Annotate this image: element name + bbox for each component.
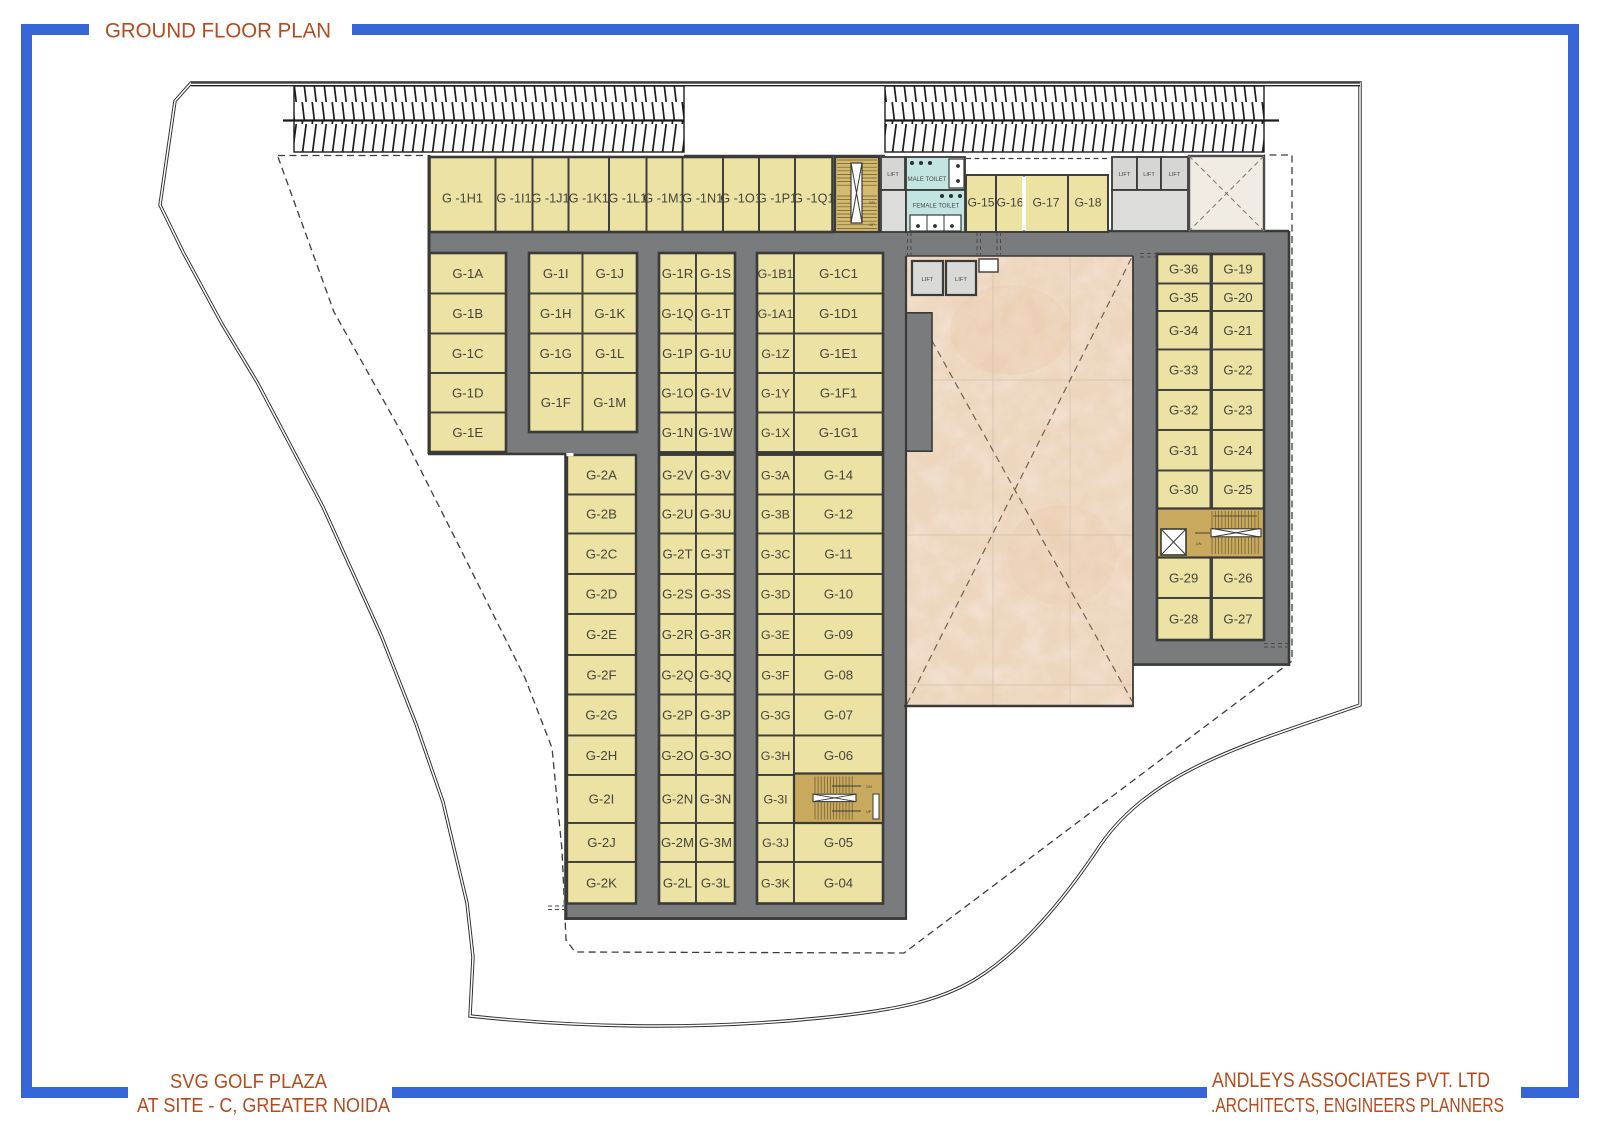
svg-text:G-3C: G-3C	[761, 547, 791, 561]
svg-text:G-21: G-21	[1223, 323, 1252, 338]
svg-text:G-06: G-06	[824, 748, 853, 763]
svg-text:G-1R: G-1R	[662, 266, 694, 281]
svg-text:G-3G: G-3G	[760, 709, 790, 723]
svg-text:MALE TOILET: MALE TOILET	[908, 177, 947, 183]
svg-text:DN: DN	[1196, 542, 1202, 546]
svg-text:G-26: G-26	[1223, 570, 1252, 585]
svg-text:G-3V: G-3V	[700, 467, 731, 482]
svg-text:G-3K: G-3K	[761, 876, 791, 890]
svg-text:G-28: G-28	[1169, 612, 1198, 627]
svg-text:G-1L: G-1L	[595, 346, 624, 361]
svg-text:G-1G1: G-1G1	[819, 425, 859, 440]
svg-text:G-31: G-31	[1169, 443, 1198, 458]
svg-text:G-3H: G-3H	[761, 749, 791, 763]
svg-text:G-1Y: G-1Y	[761, 386, 790, 400]
svg-text:G-1Z: G-1Z	[761, 347, 790, 361]
svg-text:G-09: G-09	[824, 627, 853, 642]
svg-text:G-1A1: G-1A1	[758, 307, 794, 321]
svg-text:G-1W: G-1W	[698, 425, 733, 440]
svg-text:G-1E1: G-1E1	[819, 346, 857, 361]
svg-text:LIFT: LIFT	[922, 277, 934, 283]
svg-text:G-1C1: G-1C1	[819, 266, 858, 281]
svg-text:G-2U: G-2U	[662, 507, 694, 522]
svg-text:G-1X: G-1X	[761, 426, 790, 440]
svg-text:G-19: G-19	[1223, 261, 1252, 276]
svg-text:G-2P: G-2P	[662, 708, 693, 723]
svg-text:G-25: G-25	[1223, 482, 1252, 497]
svg-text:ANDLEYS ASSOCIATES PVT. LTD: ANDLEYS ASSOCIATES PVT. LTD	[1212, 1069, 1490, 1092]
svg-text:G-17: G-17	[1032, 196, 1059, 210]
svg-text:G-1A: G-1A	[452, 266, 483, 281]
svg-text:G-1V: G-1V	[700, 385, 731, 400]
svg-text:G-18: G-18	[1074, 196, 1101, 210]
svg-text:G-3D: G-3D	[761, 588, 791, 602]
svg-text:G -1N1: G -1N1	[682, 192, 723, 206]
svg-text:G-11: G-11	[824, 546, 852, 561]
svg-text:G-1Q: G-1Q	[661, 306, 693, 321]
svg-text:G-3R: G-3R	[700, 627, 732, 642]
svg-text:G-10: G-10	[824, 587, 853, 602]
svg-text:G-2N: G-2N	[662, 792, 694, 807]
svg-text:G-14: G-14	[824, 467, 853, 482]
svg-text:G-27: G-27	[1223, 612, 1252, 627]
svg-text:G-05: G-05	[824, 835, 853, 850]
svg-text:FEMALE TOILET: FEMALE TOILET	[913, 204, 960, 210]
svg-text:G-2K: G-2K	[586, 875, 617, 890]
svg-text:LIFT: LIFT	[1143, 172, 1155, 178]
svg-text:G-1B1: G-1B1	[758, 267, 794, 281]
svg-text:G-34: G-34	[1169, 323, 1198, 338]
svg-text:G-1O: G-1O	[661, 385, 693, 400]
svg-text:G-3S: G-3S	[700, 587, 731, 602]
svg-text:G-2Q: G-2Q	[661, 667, 693, 682]
svg-text:G-20: G-20	[1223, 290, 1252, 305]
svg-text:G-3T: G-3T	[700, 546, 730, 561]
svg-text:UP: UP	[866, 810, 872, 814]
svg-text:AT SITE - C, GREATER NOIDA: AT SITE - C, GREATER NOIDA	[137, 1095, 391, 1117]
svg-text:G-1F: G-1F	[541, 395, 571, 410]
svg-text:G-3Q: G-3Q	[699, 667, 731, 682]
svg-text:G-2C: G-2C	[586, 546, 618, 561]
svg-text:G-3B: G-3B	[761, 508, 790, 522]
svg-text:G-2G: G-2G	[585, 708, 617, 723]
svg-text:G-3M: G-3M	[699, 835, 732, 850]
svg-text:G -1M1: G -1M1	[643, 192, 685, 206]
svg-text:G-22: G-22	[1223, 362, 1252, 377]
svg-text:.ARCHITECTS, ENGINEERS PLANNER: .ARCHITECTS, ENGINEERS PLANNERS	[1211, 1095, 1504, 1117]
svg-text:G-04: G-04	[824, 875, 853, 890]
svg-text:UP: UP	[869, 223, 875, 227]
svg-text:G-23: G-23	[1223, 403, 1252, 418]
svg-text:G-2A: G-2A	[586, 467, 617, 482]
svg-text:G-2R: G-2R	[662, 627, 694, 642]
svg-text:G-3J: G-3J	[762, 836, 789, 850]
svg-text:DN: DN	[869, 201, 875, 205]
svg-text:G-2L: G-2L	[663, 875, 692, 890]
svg-text:G-3L: G-3L	[701, 875, 730, 890]
svg-text:G -1P1: G -1P1	[757, 192, 797, 206]
svg-text:G-29: G-29	[1169, 570, 1198, 585]
svg-text:G-2F: G-2F	[586, 667, 616, 682]
svg-text:LIFT: LIFT	[887, 172, 899, 178]
svg-text:G-1K: G-1K	[594, 306, 625, 321]
svg-text:G -1I1: G -1I1	[496, 192, 531, 206]
svg-text:G-1C: G-1C	[452, 346, 484, 361]
svg-text:G-2O: G-2O	[661, 748, 693, 763]
svg-text:G-35: G-35	[1169, 290, 1198, 305]
svg-text:LIFT: LIFT	[1119, 172, 1131, 178]
svg-text:ON: ON	[866, 785, 872, 789]
svg-text:GROUND FLOOR PLAN: GROUND FLOOR PLAN	[105, 20, 331, 43]
svg-text:SVG GOLF PLAZA: SVG GOLF PLAZA	[170, 1071, 328, 1093]
svg-text:G -1L1: G -1L1	[608, 192, 647, 206]
svg-text:G-3F: G-3F	[761, 668, 790, 682]
svg-text:G-1J: G-1J	[595, 266, 624, 281]
svg-text:LIFT: LIFT	[1169, 172, 1181, 178]
svg-text:G-1T: G-1T	[700, 306, 730, 321]
svg-text:G -1O1: G -1O1	[720, 192, 762, 206]
svg-text:G-3O: G-3O	[699, 748, 731, 763]
svg-text:G-1S: G-1S	[700, 266, 731, 281]
svg-text:G-3N: G-3N	[700, 792, 732, 807]
svg-text:G-1P: G-1P	[662, 346, 693, 361]
svg-text:G-33: G-33	[1169, 362, 1198, 377]
svg-text:G-1U: G-1U	[700, 346, 732, 361]
svg-text:G-32: G-32	[1169, 403, 1198, 418]
svg-text:G-3I: G-3I	[763, 793, 787, 807]
svg-text:G-1E: G-1E	[452, 425, 483, 440]
svg-text:G-3U: G-3U	[700, 507, 732, 522]
svg-text:G-2T: G-2T	[662, 546, 692, 561]
svg-text:G-3E: G-3E	[761, 628, 790, 642]
svg-text:G-1D: G-1D	[452, 385, 484, 400]
svg-text:G-2I: G-2I	[589, 792, 615, 807]
svg-text:G-2S: G-2S	[662, 587, 693, 602]
svg-text:G-36: G-36	[1169, 261, 1198, 276]
svg-text:G-1I: G-1I	[543, 266, 569, 281]
svg-text:G-1D1: G-1D1	[819, 306, 858, 321]
svg-text:G -1Q1: G -1Q1	[793, 192, 835, 206]
svg-text:G -1K1: G -1K1	[569, 192, 609, 206]
svg-text:G-1B: G-1B	[452, 306, 483, 321]
svg-text:G-2B: G-2B	[586, 507, 617, 522]
svg-text:G -1H1: G -1H1	[442, 192, 483, 206]
svg-text:G-1F1: G-1F1	[820, 385, 857, 400]
svg-text:G-2D: G-2D	[586, 587, 618, 602]
svg-text:G-3A: G-3A	[761, 468, 791, 482]
svg-text:G -1J1: G -1J1	[531, 192, 569, 206]
svg-text:G-16: G-16	[996, 196, 1023, 210]
svg-text:G-07: G-07	[824, 708, 853, 723]
svg-text:G-1H: G-1H	[540, 306, 572, 321]
svg-text:G-3P: G-3P	[700, 708, 731, 723]
svg-text:G-30: G-30	[1169, 482, 1198, 497]
svg-text:G-1G: G-1G	[540, 346, 572, 361]
svg-text:G-1M: G-1M	[593, 395, 626, 410]
svg-text:G-2V: G-2V	[662, 467, 693, 482]
svg-text:G-2H: G-2H	[586, 748, 618, 763]
svg-text:G-2E: G-2E	[586, 627, 617, 642]
svg-text:G-2M: G-2M	[661, 835, 694, 850]
svg-text:G-08: G-08	[824, 667, 853, 682]
svg-text:LIFT: LIFT	[955, 277, 967, 283]
svg-text:G-12: G-12	[824, 507, 853, 522]
svg-text:G-2J: G-2J	[587, 835, 616, 850]
svg-text:G-24: G-24	[1223, 443, 1252, 458]
svg-text:G-1N: G-1N	[662, 425, 694, 440]
svg-text:G-15: G-15	[967, 196, 994, 210]
